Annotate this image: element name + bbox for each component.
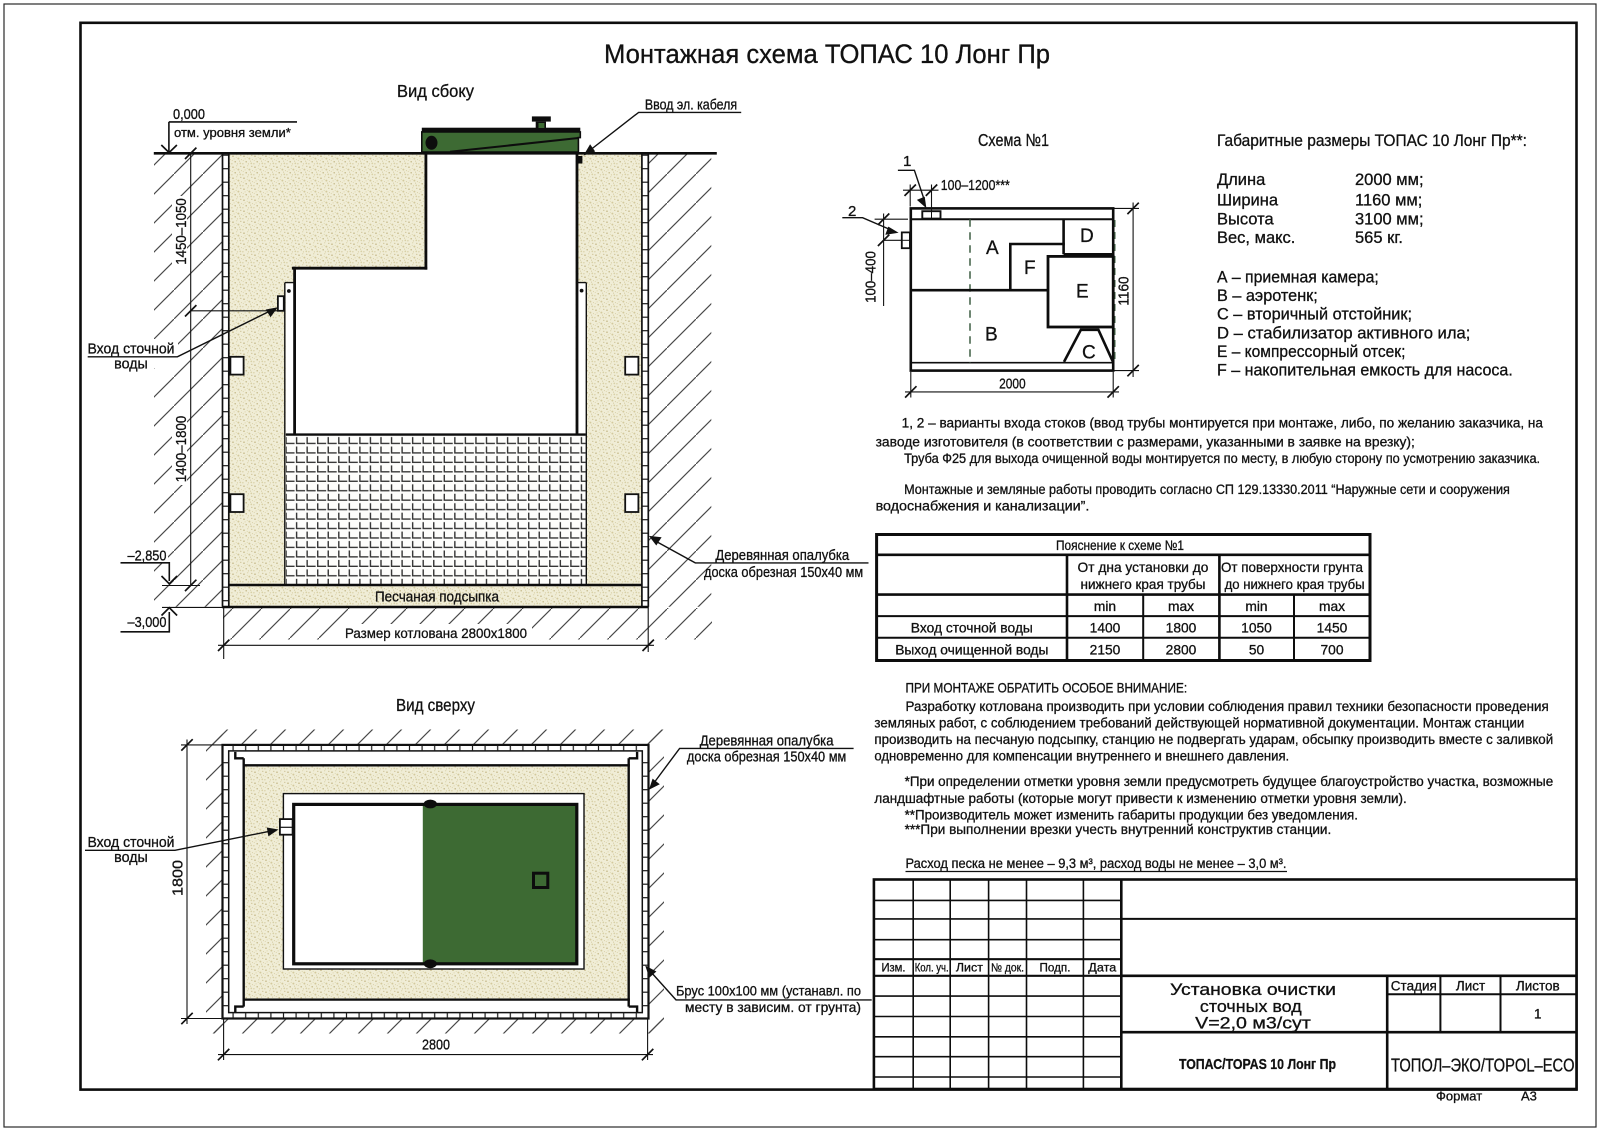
svg-text:700: 700 [1320,643,1343,658]
svg-text:ландшафтные работы (которые мо: ландшафтные работы (которые могут привес… [874,791,1406,806]
svg-text:1160: 1160 [1117,276,1133,305]
svg-text:1450: 1450 [1317,621,1348,636]
svg-text:565 кг.: 565 кг. [1355,229,1403,247]
svg-text:Стадия: Стадия [1391,979,1437,994]
svg-text:1800: 1800 [1166,621,1197,636]
svg-text:производить на песчаную подсып: производить на песчаную подсыпку, станци… [874,732,1553,747]
svg-text:Деревянная опалубка: Деревянная опалубка [715,548,849,564]
svg-text:Песчаная подсыпка: Песчаная подсыпка [375,590,499,606]
svg-text:Е: Е [1076,282,1089,303]
svg-text:Схема №1: Схема №1 [978,130,1049,150]
svg-text:С – вторичный отстойник;: С – вторичный отстойник; [1217,306,1412,324]
svg-text:max: max [1319,599,1345,614]
svg-text:1: 1 [1534,1007,1542,1022]
svg-text:F – накопительная емкость для: F – накопительная емкость для насоса. [1217,362,1513,380]
svg-text:F: F [1024,258,1036,279]
svg-text:1400–1800: 1400–1800 [174,416,190,482]
svg-text:Расход песка не менее – 9,3 м³: Расход песка не менее – 9,3 м³, расход в… [906,856,1287,871]
svg-text:V=2,0 м3/сут: V=2,0 м3/сут [1195,1014,1311,1033]
svg-text:воды: воды [114,850,148,866]
svg-text:воды: воды [114,357,148,373]
svg-text:D: D [1080,226,1094,247]
svg-text:одновременно для компенсации в: одновременно для компенсации внутреннего… [874,749,1289,764]
svg-text:Подп.: Подп. [1040,961,1071,975]
svg-text:Брус 100х100 мм (устанавл. по: Брус 100х100 мм (устанавл. по [676,984,861,999]
svg-text:Дата: Дата [1088,961,1116,975]
svg-text:доска обрезная 150х40 мм: доска обрезная 150х40 мм [687,750,846,766]
svg-text:***При выполнении врезки учест: ***При выполнении врезки учесть внутренн… [905,822,1332,837]
svg-text:Деревянная опалубка: Деревянная опалубка [700,734,834,750]
svg-text:2800: 2800 [422,1038,450,1054]
svg-text:2000: 2000 [999,377,1026,393]
svg-text:Вид сбоку: Вид сбоку [397,81,474,101]
svg-text:Вход сточной: Вход сточной [88,342,175,358]
svg-text:В: В [985,325,998,346]
svg-text:Лист: Лист [956,961,984,975]
svg-text:Формат: Формат [1436,1089,1482,1104]
svg-text:А – приемная камера;: А – приемная камера; [1217,269,1379,287]
svg-text:1050: 1050 [1241,621,1272,636]
svg-text:50: 50 [1249,643,1265,658]
svg-text:1450–1050: 1450–1050 [174,198,190,264]
svg-text:доска обрезная 150х40 мм: доска обрезная 150х40 мм [704,565,863,581]
svg-text:водоснабжения и канализации”.: водоснабжения и канализации”. [876,499,1090,514]
svg-text:1400: 1400 [1090,621,1121,636]
svg-text:Пояснение к схеме №1: Пояснение к схеме №1 [1056,538,1184,553]
svg-text:min: min [1094,599,1116,614]
svg-text:100–400: 100–400 [864,251,880,303]
svg-text:№ док.: № док. [991,961,1024,975]
svg-text:Габаритные размеры ТОПАС 10 Ло: Габаритные размеры ТОПАС 10 Лонг Пр**: [1217,132,1527,150]
svg-text:заводе изготовителя (в соответ: заводе изготовителя (в соответствии с ра… [876,435,1415,450]
svg-text:Выход очищенной воды: Выход очищенной воды [895,643,1048,658]
svg-text:А3: А3 [1521,1089,1537,1104]
svg-text:1, 2 – варианты входа стоков: 1, 2 – варианты входа стоков (ввод трубы… [902,416,1544,431]
svg-text:Монтажная схема ТОПАС 10 Лонг: Монтажная схема ТОПАС 10 Лонг Пр [604,39,1050,69]
svg-text:100–1200***: 100–1200*** [941,177,1010,194]
svg-text:Е – компрессорный отсек;: Е – компрессорный отсек; [1217,343,1405,361]
svg-text:В – аэротенк;: В – аэротенк; [1217,287,1318,305]
svg-text:Вход сточной: Вход сточной [88,835,175,851]
svg-text:нижнего края трубы: нижнего края трубы [1081,577,1206,592]
svg-text:Изм.: Изм. [882,961,906,975]
svg-text:Вид сверху: Вид сверху [396,695,475,715]
svg-text:Ширина: Ширина [1217,192,1279,210]
svg-text:D – стабилизатор активного ила: D – стабилизатор активного ила; [1217,325,1470,343]
svg-text:**Производитель может изменить: **Производитель может изменить габариты … [905,808,1358,823]
svg-text:Лист: Лист [1456,979,1485,994]
svg-text:отм. уровня земли*: отм. уровня земли* [174,125,291,140]
svg-text:Длина: Длина [1217,171,1266,189]
svg-text:1: 1 [903,153,911,170]
svg-text:1800: 1800 [171,860,187,896]
svg-text:земляных работ, с соблюдением: земляных работ, с соблюдением требований… [874,716,1524,731]
svg-text:Листов: Листов [1516,979,1560,994]
svg-text:А: А [986,238,999,259]
svg-text:0,000: 0,000 [173,106,205,123]
svg-text:От дна установки до: От дна установки до [1078,560,1209,575]
svg-text:Вход сточной воды: Вход сточной воды [911,621,1033,636]
svg-text:Высота: Высота [1217,211,1274,229]
svg-text:Размер котлована 2800х1800: Размер котлована 2800х1800 [345,625,527,641]
svg-text:Разработку котлована производи: Разработку котлована производить при усл… [906,699,1549,714]
svg-text:max: max [1168,599,1194,614]
svg-text:до нижнего края трубы: до нижнего края трубы [1225,577,1365,592]
svg-text:–3,000: –3,000 [128,615,167,631]
svg-text:Монтажные и земляные работы пр: Монтажные и земляные работы проводить со… [904,482,1510,497]
svg-text:2800: 2800 [1166,643,1197,658]
svg-text:ТОПАС/TOPAS 10 Лонг Пр: ТОПАС/TOPAS 10 Лонг Пр [1179,1057,1336,1073]
svg-text:2000 мм;: 2000 мм; [1355,171,1424,189]
svg-text:*При определении отметки уровн: *При определении отметки уровня земли пр… [905,774,1554,789]
svg-text:1160 мм;: 1160 мм; [1355,192,1422,210]
svg-text:min: min [1245,599,1267,614]
svg-text:Кол. уч.: Кол. уч. [915,961,949,975]
svg-text:От поверхности грунта: От поверхности грунта [1221,560,1363,575]
svg-text:С: С [1082,343,1096,364]
svg-text:Вес, макс.: Вес, макс. [1217,229,1295,247]
svg-text:3100 мм;: 3100 мм; [1355,211,1424,229]
svg-text:ТОПОЛ–ЭКО/TOPOL–ECO: ТОПОЛ–ЭКО/TOPOL–ECO [1391,1055,1575,1076]
svg-text:Ввод эл. кабеля: Ввод эл. кабеля [645,98,737,114]
svg-text:Труба Ф25 для выхода очищенной: Труба Ф25 для выхода очищенной воды монт… [904,451,1540,466]
svg-text:месту в зависим. от грунта): месту в зависим. от грунта) [685,1000,861,1015]
svg-text:ПРИ МОНТАЖЕ ОБРАТИТЬ ОСОБОЕ ВН: ПРИ МОНТАЖЕ ОБРАТИТЬ ОСОБОЕ ВНИМАНИЕ: [906,681,1188,696]
svg-text:2150: 2150 [1090,643,1121,658]
